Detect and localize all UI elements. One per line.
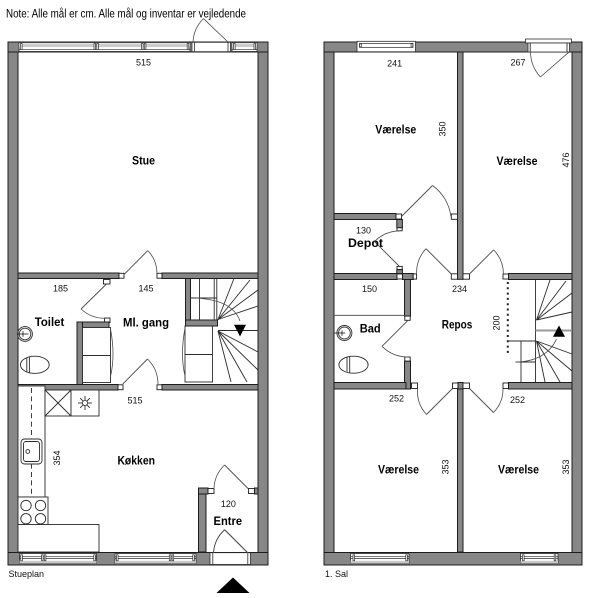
svg-text:Værelse: Værelse	[498, 464, 539, 477]
svg-text:Stueplan: Stueplan	[9, 569, 45, 579]
svg-text:200: 200	[491, 315, 501, 330]
svg-text:Værelse: Værelse	[497, 155, 538, 168]
svg-text:350: 350	[438, 121, 448, 136]
svg-text:Køkken: Køkken	[117, 454, 155, 467]
svg-text:241: 241	[387, 58, 402, 68]
svg-text:476: 476	[561, 152, 571, 167]
svg-text:Repos: Repos	[442, 319, 473, 332]
svg-text:353: 353	[440, 459, 450, 474]
svg-text:252: 252	[389, 394, 404, 404]
svg-text:1. Sal: 1. Sal	[325, 569, 348, 579]
svg-text:Værelse: Værelse	[378, 464, 419, 477]
svg-text:150: 150	[362, 284, 377, 294]
svg-text:Bad: Bad	[360, 322, 381, 335]
svg-text:Ml. gang: Ml. gang	[123, 316, 169, 329]
svg-text:Depot: Depot	[348, 237, 383, 250]
svg-text:267: 267	[510, 57, 525, 67]
svg-text:130: 130	[356, 225, 371, 235]
svg-text:353: 353	[561, 459, 571, 474]
svg-text:145: 145	[138, 283, 153, 293]
svg-text:120: 120	[221, 499, 236, 509]
svg-text:Værelse: Værelse	[375, 123, 416, 136]
svg-text:185: 185	[53, 283, 68, 293]
svg-text:354: 354	[52, 450, 62, 465]
svg-text:515: 515	[136, 58, 151, 68]
svg-text:515: 515	[127, 396, 142, 406]
svg-text:Entre: Entre	[214, 515, 243, 528]
svg-text:Stue: Stue	[132, 154, 156, 167]
svg-text:Note: Alle mål er cm. Alle mål: Note: Alle mål er cm. Alle mål og invent…	[6, 7, 246, 21]
svg-text:Toilet: Toilet	[35, 316, 65, 329]
svg-text:234: 234	[452, 284, 467, 294]
svg-text:252: 252	[510, 395, 525, 405]
